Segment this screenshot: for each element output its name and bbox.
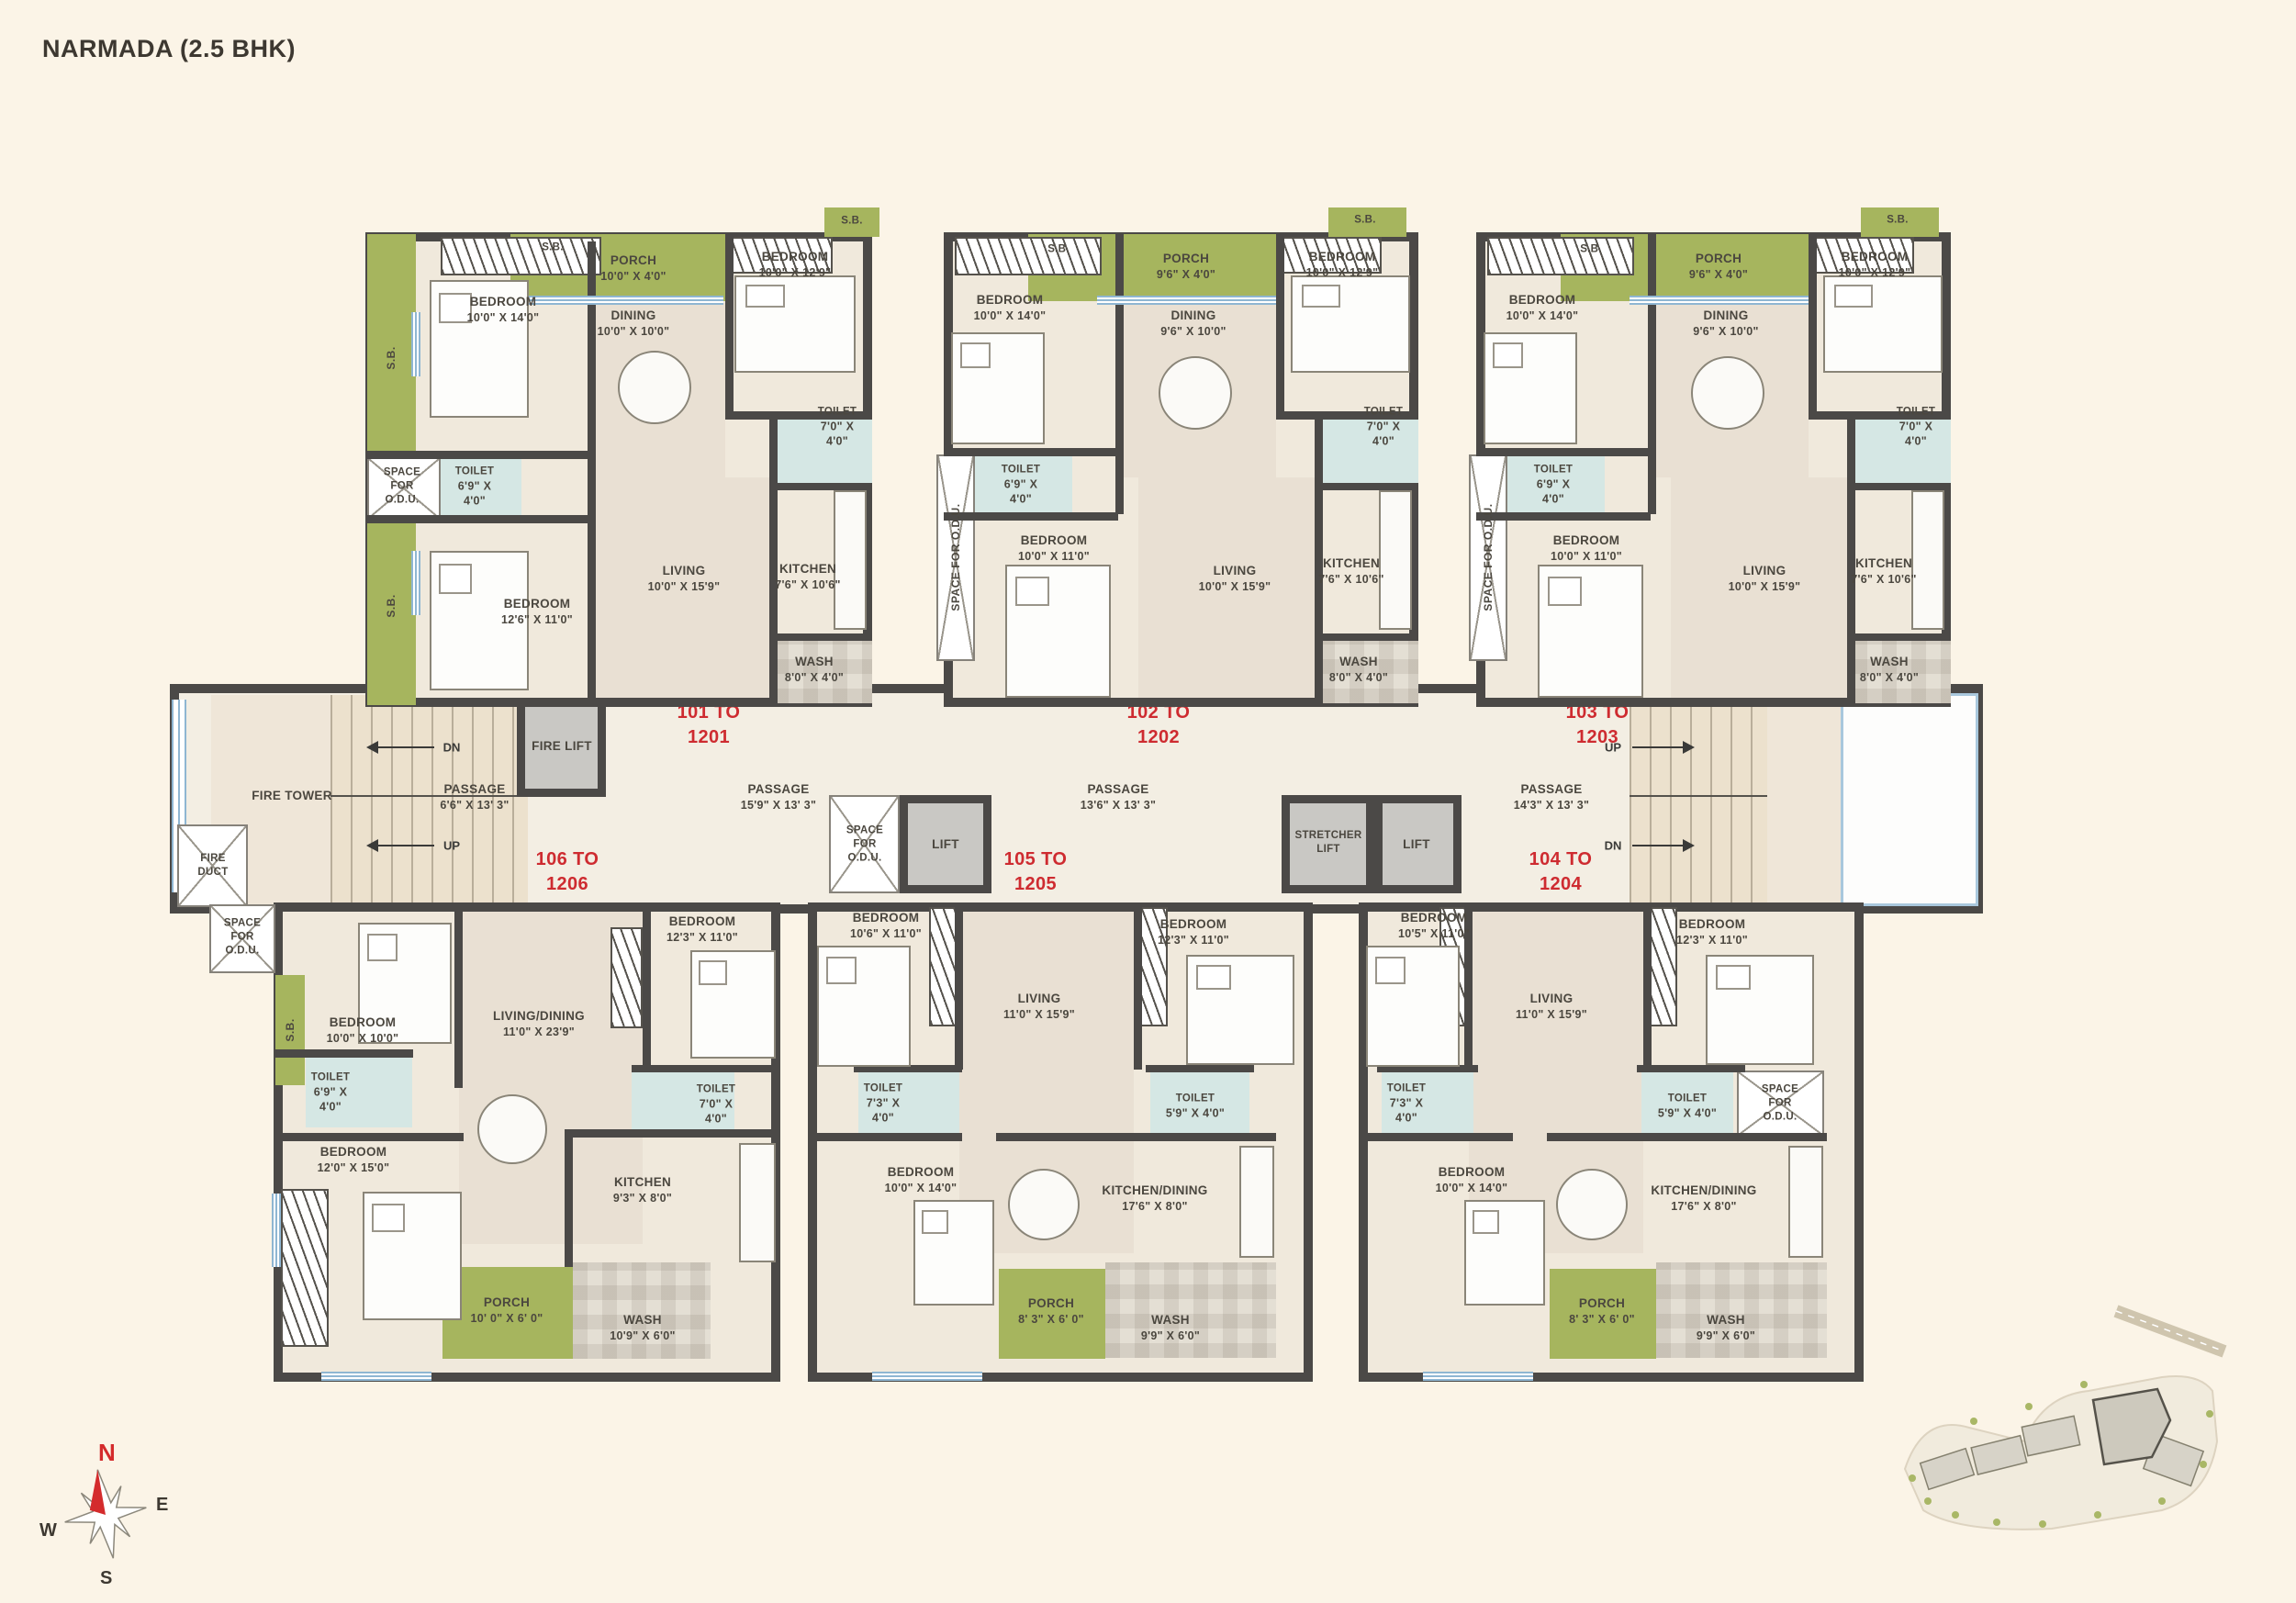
corridor-balcony [1841, 693, 1978, 906]
window [411, 312, 420, 376]
kitchen-counter [739, 1143, 776, 1262]
sb-label: S.B. [1887, 214, 1909, 228]
room-label-toilet: TOILET7'3" X4'0" [1387, 1082, 1426, 1125]
room-label-toilet: TOILET5'9" X 4'0" [1658, 1092, 1717, 1120]
wardrobe [955, 237, 1102, 275]
window [1097, 296, 1276, 305]
wall-segment [774, 633, 872, 641]
sb-label: S.B. [284, 1018, 297, 1041]
wall-segment [454, 904, 463, 1088]
window [872, 1372, 982, 1381]
compass-n: N [98, 1439, 116, 1466]
room-label-bedroom: BEDROOM10'0" X 12'9" [759, 249, 832, 280]
room-label-wash: WASH8'0" X 4'0" [785, 654, 844, 685]
compass-w: W [39, 1520, 57, 1541]
room-label-kitchen: KITCHEN9'3" X 8'0" [613, 1174, 672, 1205]
wall-segment [1476, 512, 1651, 521]
room-label-porch: PORCH10'0" X 4'0" [600, 252, 666, 284]
room-label-living: LIVING11'0" X 15'9" [1003, 991, 1075, 1022]
passage-label: PASSAGE15'9" X 13' 3" [741, 781, 816, 813]
bed [1823, 275, 1943, 373]
compass-star: N E W S [32, 1428, 179, 1588]
room-label-toilet: TOILET6'9" X4'0" [1002, 463, 1040, 506]
room-label-bedroom: BEDROOM10'0" X 11'0" [1551, 532, 1622, 564]
room-label-toilet: TOILET7'0" X4'0" [818, 405, 857, 448]
sb-label: S.B. [385, 594, 398, 617]
room-label-wash: WASH9'9" X 6'0" [1697, 1312, 1755, 1343]
unit-range-103: 103 TO1203 [1566, 701, 1630, 750]
wall-segment [588, 241, 596, 698]
bed [1366, 946, 1460, 1067]
wall-segment [996, 1133, 1276, 1141]
sb-label: S.B. [841, 215, 863, 229]
sb-label: S.B. [1580, 243, 1602, 257]
room-label-toilet: TOILET6'9" X4'0" [455, 465, 494, 508]
room-label-living: LIVING10'0" X 15'9" [1729, 563, 1801, 594]
wardrobe [441, 237, 601, 275]
unit-range-104: 104 TO1204 [1529, 847, 1593, 897]
wall-segment [944, 448, 1118, 456]
arrow-up [372, 845, 434, 846]
wall-segment [367, 451, 588, 459]
stairs-up-label: UP [443, 839, 460, 853]
room-label-bedroom: BEDROOM10'0" X 14'0" [974, 292, 1047, 323]
fire-lift-label: FIRE LIFT [532, 738, 592, 755]
wall-segment [1853, 483, 1951, 490]
kitchen-counter [834, 490, 867, 630]
room-label-wash: WASH8'0" X 4'0" [1860, 654, 1919, 685]
dining-table [1159, 356, 1232, 430]
wardrobe [1648, 907, 1677, 1026]
sb-label: S.B. [542, 241, 564, 255]
wall-segment [632, 1065, 778, 1072]
wardrobe [610, 927, 643, 1028]
bed [913, 1200, 994, 1306]
room-label-porch: PORCH9'6" X 4'0" [1689, 251, 1748, 282]
room-label-toilet: TOILET7'0" X4'0" [1897, 405, 1935, 448]
wall-segment [367, 515, 588, 523]
room-label-bedroom: BEDROOM12'3" X 11'0" [666, 914, 738, 945]
passage-label: PASSAGE6'6" X 13' 3" [440, 781, 509, 813]
unit-range-105: 105 TO1205 [1004, 847, 1068, 897]
room-label-odu: SPACEFORO.D.U. [384, 466, 420, 508]
wall-segment [1134, 904, 1142, 1070]
room-label-odu: SPACE FOR O.D.U. [949, 503, 962, 611]
room-label-wash: WASH9'9" X 6'0" [1141, 1312, 1200, 1343]
bed [690, 950, 776, 1059]
lift-label: LIFT [932, 836, 959, 853]
fire-duct-label: FIREDUCT [197, 852, 228, 880]
wardrobe [281, 1189, 329, 1347]
room-label-bedroom: BEDROOM12'3" X 11'0" [1676, 916, 1748, 947]
room-label-porch: PORCH10' 0" X 6' 0" [471, 1295, 543, 1326]
room-label-wash: WASH8'0" X 4'0" [1329, 654, 1388, 685]
wall-segment [955, 904, 963, 1070]
wall-segment [1476, 448, 1651, 456]
room-label-bedroom: BEDROOM10'0" X 11'0" [1018, 532, 1090, 564]
bed [363, 1192, 462, 1320]
room-label-living: LIVING10'0" X 15'9" [1199, 563, 1271, 594]
room-label-dining: DINING9'6" X 10'0" [1160, 308, 1226, 339]
passage-label: PASSAGE13'6" X 13' 3" [1081, 781, 1156, 813]
bed [1186, 955, 1294, 1065]
wall-segment [1637, 1065, 1745, 1072]
wall-segment [275, 1133, 464, 1141]
site-map-graphic [1887, 1304, 2235, 1552]
compass-rose: N E W S [32, 1428, 179, 1588]
arrow-dn [1632, 845, 1689, 846]
wall-segment [815, 1133, 962, 1141]
wall-segment [569, 1129, 778, 1138]
wall-segment [1643, 904, 1652, 1070]
wall-segment [1366, 1133, 1513, 1141]
site-map [1887, 1304, 2235, 1552]
room-label-toilet: TOILET6'9" X4'0" [1534, 463, 1573, 506]
unit-range-101: 101 TO1201 [678, 701, 741, 750]
room-label-living-dining: LIVING/DINING11'0" X 23'9" [493, 1008, 585, 1039]
wall-segment [769, 411, 778, 707]
kitchen-counter [1239, 1146, 1274, 1258]
room-label-porch: PORCH9'6" X 4'0" [1157, 251, 1215, 282]
arrow-dn [372, 746, 434, 748]
window [1423, 1372, 1533, 1381]
wall-segment [1320, 633, 1418, 641]
lift-label: LIFT [1403, 836, 1430, 853]
stairs-dn-label: DN [443, 741, 461, 755]
room-label-kitchen: KITCHEN7'6" X 10'6" [1851, 555, 1916, 587]
room-label-kitchen: KITCHEN7'6" X 10'6" [775, 561, 840, 592]
stairs-dn-label: DN [1605, 839, 1622, 853]
floor-plan-canvas: NARMADA (2.5 BHK) DN UP UP DN FIRE TOWER… [0, 0, 2296, 1603]
kitchen-counter [1788, 1146, 1823, 1258]
window [514, 296, 723, 305]
window [321, 1372, 431, 1381]
wash-area [573, 1262, 711, 1359]
stairs-right [1630, 695, 1767, 904]
odu-label: SPACEFORO.D.U. [846, 824, 883, 866]
wall-segment [725, 234, 734, 418]
wash-area [1105, 1262, 1276, 1358]
sb-label: S.B. [385, 346, 398, 369]
wall-segment [1853, 633, 1951, 641]
room-label-odu: SPACE FOR O.D.U. [1482, 503, 1495, 611]
bed [734, 275, 856, 373]
dining-table [1008, 1169, 1080, 1240]
room-label-dining: DINING9'6" X 10'0" [1693, 308, 1758, 339]
bed [1538, 565, 1643, 698]
room-label-toilet: TOILET7'0" X4'0" [697, 1082, 735, 1126]
wall-segment [275, 1049, 413, 1058]
wall-segment [1276, 234, 1284, 418]
room-label-kitchen-dining: KITCHEN/DINING17'6" X 8'0" [1651, 1183, 1756, 1214]
dining-table [1691, 356, 1764, 430]
room-label-kitchen-dining: KITCHEN/DINING17'6" X 8'0" [1102, 1183, 1207, 1214]
room-label-bedroom: BEDROOM10'0" X 14'0" [1506, 292, 1579, 323]
room-label-toilet: TOILET7'3" X4'0" [864, 1082, 902, 1125]
fire-tower-label: FIRE TOWER [252, 788, 332, 804]
wall-segment [565, 1129, 573, 1267]
dining-table [477, 1094, 547, 1164]
room-label-living: LIVING10'0" X 15'9" [648, 563, 721, 594]
room-label-bedroom: BEDROOM12'0" X 15'0" [318, 1144, 390, 1175]
room-label-toilet: TOILET5'9" X 4'0" [1166, 1092, 1225, 1120]
window [272, 1194, 281, 1267]
arrow-up [1632, 746, 1689, 748]
window [1630, 296, 1809, 305]
page-title: NARMADA (2.5 BHK) [42, 35, 296, 63]
wall-segment [1115, 234, 1124, 514]
wash-area [1656, 1262, 1827, 1358]
compass-s: S [100, 1568, 112, 1588]
room-label-bedroom: BEDROOM12'3" X 11'0" [1158, 916, 1229, 947]
dining-table [1556, 1169, 1628, 1240]
bed [1005, 565, 1111, 698]
room-label-odu: SPACEFORO.D.U. [1762, 1083, 1798, 1125]
room-label-bedroom: BEDROOM10'0" X 14'0" [885, 1164, 958, 1195]
unit-range-102: 102 TO1202 [1127, 701, 1191, 750]
room-label-bedroom: BEDROOM10'6" X 11'0" [850, 910, 922, 941]
passage-label: PASSAGE14'3" X 13' 3" [1514, 781, 1589, 813]
stairs-divider [1630, 795, 1767, 797]
room-label-toilet: TOILET6'9" X4'0" [311, 1071, 350, 1114]
room-label-bedroom: BEDROOM10'0" X 12'9" [1839, 249, 1911, 280]
window [411, 551, 420, 615]
room-label-dining: DINING10'0" X 10'0" [598, 308, 670, 339]
unit-range-106: 106 TO1206 [536, 847, 599, 897]
bed [951, 332, 1045, 444]
room-label-living: LIVING11'0" X 15'9" [1516, 991, 1587, 1022]
wall-segment [1146, 1065, 1254, 1072]
dining-table [618, 351, 691, 424]
wall-segment [774, 483, 872, 490]
room-label-toilet: TOILET7'0" X4'0" [1364, 405, 1403, 448]
bed [1484, 332, 1577, 444]
wall-segment [1320, 483, 1418, 490]
room-label-porch: PORCH8' 3" X 6' 0" [1569, 1295, 1635, 1327]
stretcher-lift-label: STRETCHERLIFT [1295, 829, 1362, 857]
room-label-wash: WASH10'9" X 6'0" [610, 1312, 675, 1343]
wall-segment [1648, 234, 1656, 514]
bed [817, 946, 911, 1067]
sb-label: S.B. [1047, 243, 1070, 257]
compass-e: E [156, 1495, 168, 1515]
room-label-bedroom: BEDROOM10'0" X 12'9" [1306, 249, 1379, 280]
sb-label: S.B. [1354, 214, 1376, 228]
room-label-porch: PORCH8' 3" X 6' 0" [1018, 1295, 1084, 1327]
bed [1464, 1200, 1545, 1306]
wall-segment [643, 904, 651, 1070]
room-label-bedroom: BEDROOM10'0" X 14'0" [467, 294, 540, 325]
bed [1291, 275, 1410, 373]
room-label-bedroom: BEDROOM12'6" X 11'0" [501, 596, 573, 627]
room-label-bedroom: BEDROOM10'0" X 14'0" [1436, 1164, 1508, 1195]
wardrobe [1487, 237, 1634, 275]
wall-segment [1809, 234, 1817, 418]
bed [1706, 955, 1814, 1065]
room-label-bedroom: BEDROOM10'5" X 11'0" [1398, 910, 1470, 941]
wall-segment [944, 512, 1118, 521]
wall-segment [1547, 1133, 1827, 1141]
room-label-kitchen: KITCHEN7'6" X 10'6" [1318, 555, 1383, 587]
room-label-odu: SPACEFORO.D.U. [224, 917, 261, 958]
room-label-bedroom: BEDROOM10'0" X 10'0" [327, 1014, 399, 1046]
stairs-landing [1767, 695, 1841, 904]
